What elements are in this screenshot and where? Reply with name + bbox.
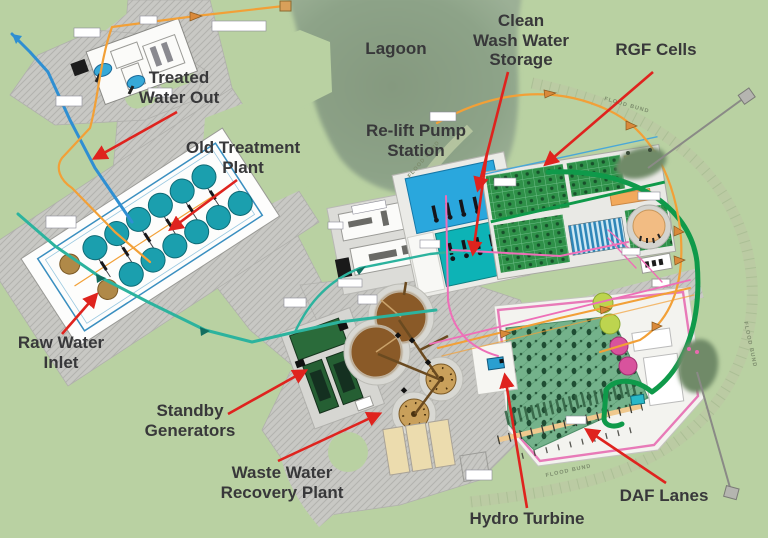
hydro-turbine-unit xyxy=(471,342,517,395)
site-map-svg: FLOOD BUND FLOOD BUND FLOOD BUND FLOOD B… xyxy=(0,0,768,538)
site-plan: FLOOD BUND FLOOD BUND FLOOD BUND FLOOD B… xyxy=(0,0,768,538)
